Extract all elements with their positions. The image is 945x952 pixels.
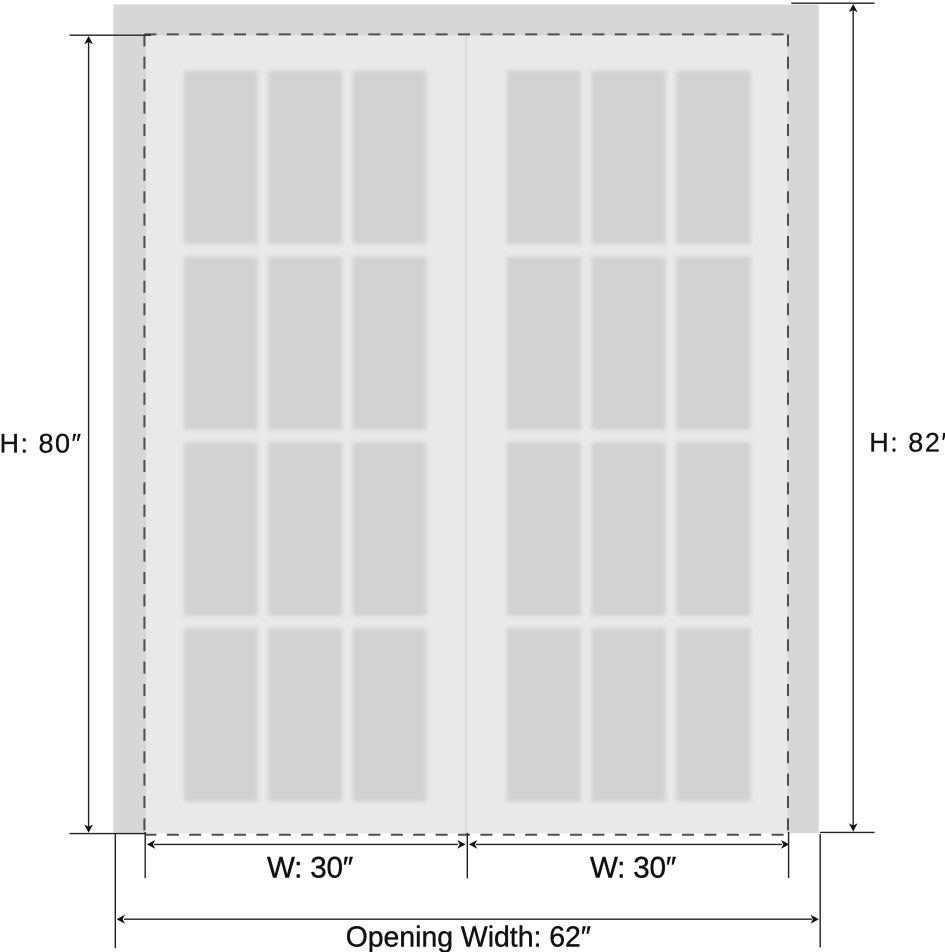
svg-text:H: 82″: H: 82″ — [869, 427, 945, 457]
svg-text:W: 30″: W: 30″ — [267, 852, 353, 885]
svg-text:H: 80″: H: 80″ — [0, 429, 83, 459]
svg-text:W: 30″: W: 30″ — [590, 852, 676, 885]
svg-text:Opening Width: 62″: Opening Width: 62″ — [346, 921, 591, 952]
